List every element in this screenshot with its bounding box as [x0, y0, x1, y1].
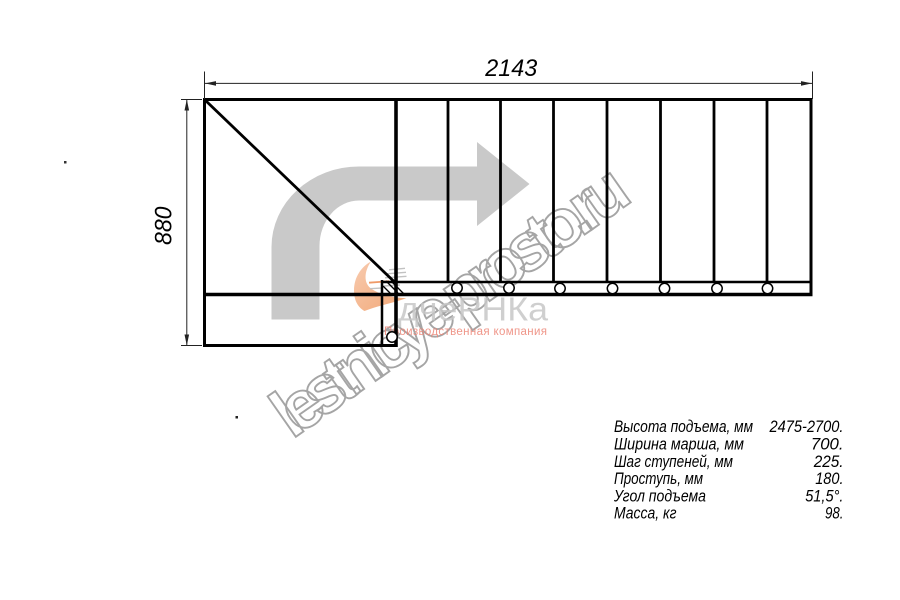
- svg-text:2143: 2143: [484, 55, 537, 82]
- svg-text:Масса, кг: Масса, кг: [614, 504, 677, 523]
- svg-text:180.: 180.: [815, 469, 843, 488]
- svg-text:Шаг ступеней, мм: Шаг ступеней, мм: [614, 452, 733, 471]
- svg-text:Ширина марша, мм: Ширина марша, мм: [614, 435, 744, 454]
- svg-text:Высота подъема, мм: Высота подъема, мм: [614, 417, 753, 436]
- svg-text:700.: 700.: [811, 435, 844, 454]
- svg-text:Производственная компания: Производственная компания: [384, 326, 547, 338]
- svg-text:Проступь, мм: Проступь, мм: [614, 469, 703, 488]
- svg-text:225.: 225.: [813, 452, 844, 471]
- svg-text:880: 880: [151, 206, 178, 245]
- svg-text:51,5°.: 51,5°.: [805, 486, 843, 505]
- svg-text:2475-2700.: 2475-2700.: [769, 417, 844, 436]
- svg-text:98.: 98.: [825, 504, 844, 523]
- svg-text:Угол подъема: Угол подъема: [613, 486, 706, 505]
